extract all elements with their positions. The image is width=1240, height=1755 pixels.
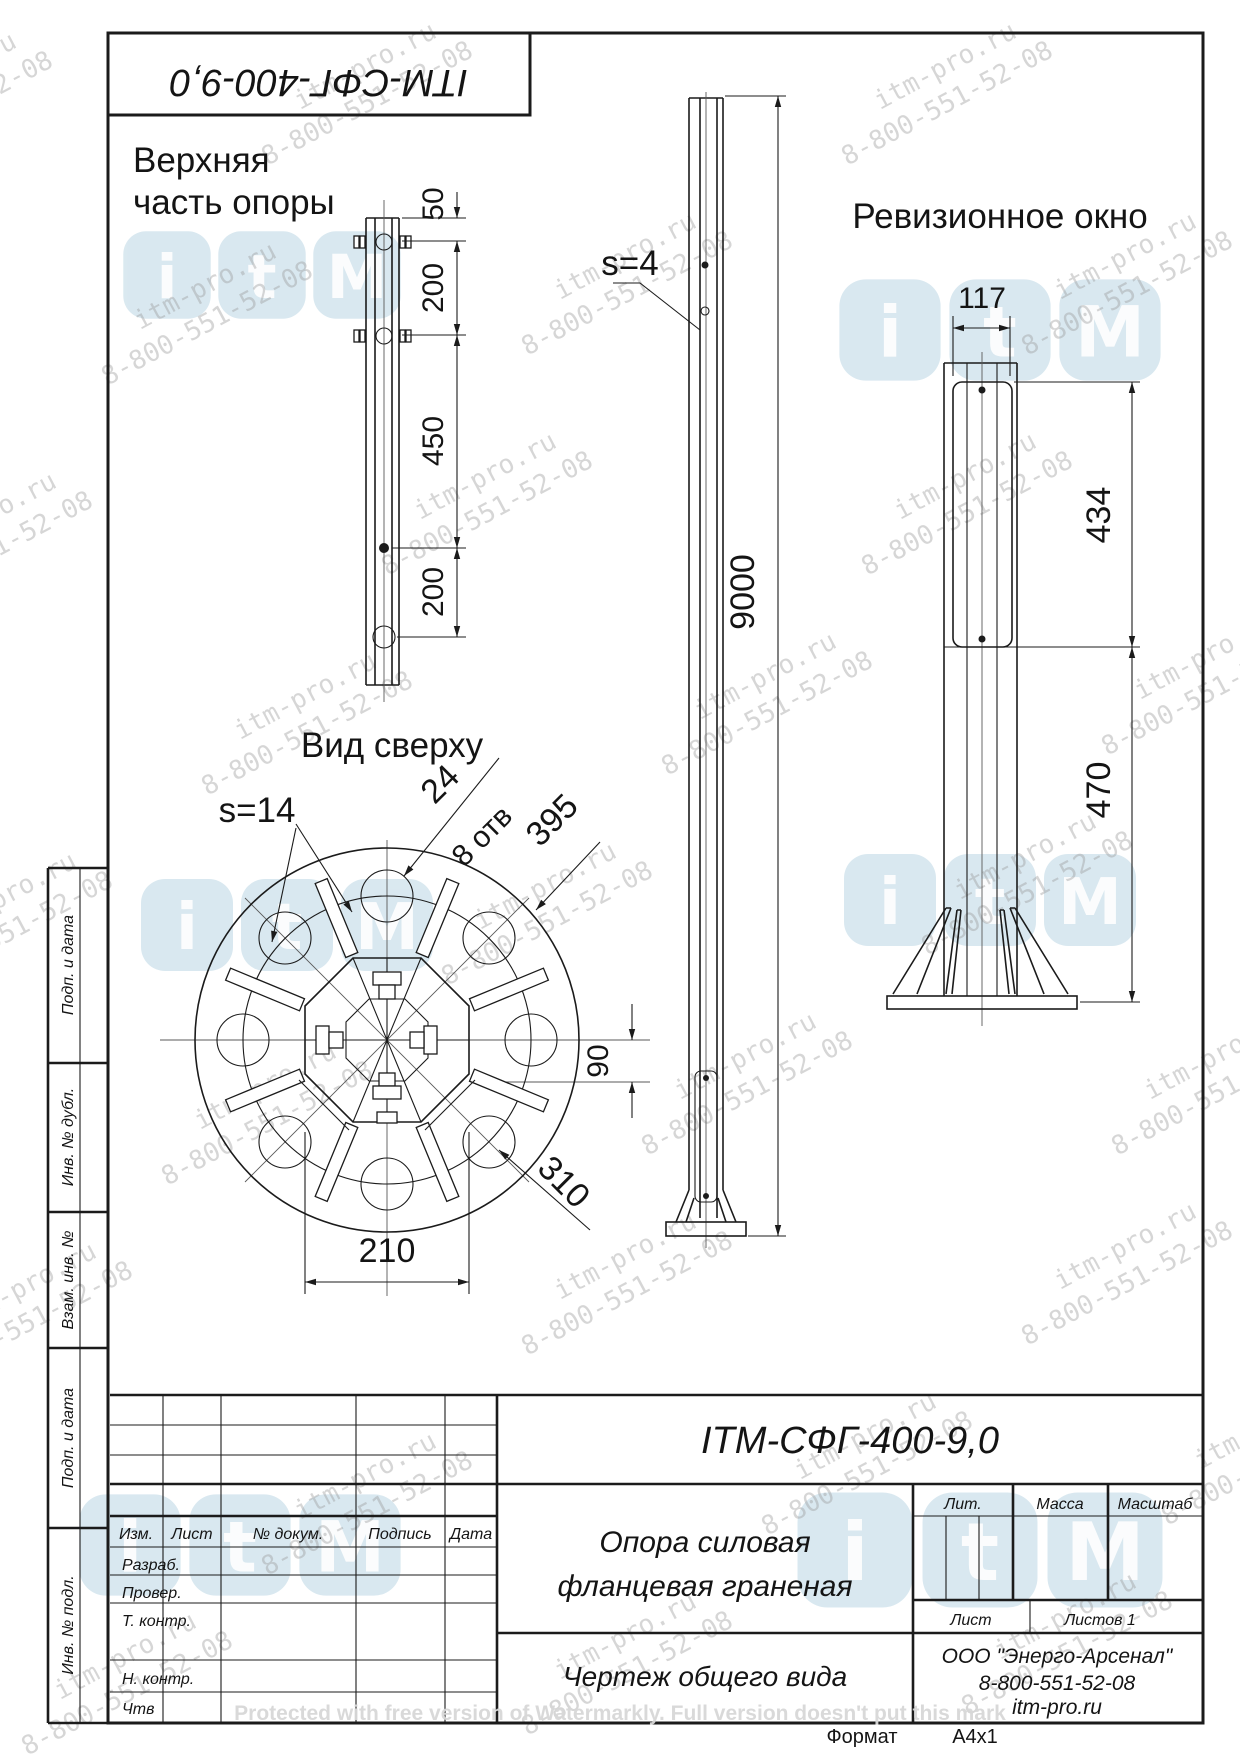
dim-450: 450 [417, 416, 450, 466]
rw-screw-top [979, 387, 986, 394]
top-view-title: Вид сверху [301, 726, 484, 765]
col-list: Лист [170, 1526, 212, 1543]
col-date: Дата [448, 1526, 492, 1543]
format-label: Формат [826, 1726, 897, 1748]
logo-letter: t [961, 1506, 999, 1599]
side-cell-2: Инв. № дубл. [60, 1088, 77, 1186]
dim-434: 434 [1080, 487, 1118, 544]
dim-90: 90 [582, 1044, 615, 1077]
dim-50: 50 [417, 187, 450, 220]
row-tcontrol: Т. контр. [122, 1613, 191, 1630]
side-cell-4: Подп. и дата [60, 1388, 77, 1488]
upper-part-label-1: Верхняя [133, 141, 270, 180]
upper-dot [379, 543, 389, 553]
row-ncontrol: Н. контр. [122, 1671, 194, 1688]
drawing-canvas: itMitMitMitMitMitMitm-pro.ru8-800-551-52… [0, 0, 1240, 1755]
window-screw-top [703, 1075, 709, 1081]
rw-screw-bottom [979, 636, 986, 643]
designation-mirrored-text: ITM-СФГ-400-9,0 [170, 61, 468, 103]
window-screw-bottom [703, 1193, 709, 1199]
dim-210: 210 [359, 1232, 416, 1270]
logo-letter: i [878, 291, 902, 373]
dim-470: 470 [1080, 762, 1118, 819]
product-name-2: фланцевая граненая [558, 1570, 853, 1603]
company-name: ООО "Энерго-Арсенал" [942, 1645, 1174, 1668]
drawing-sheet: itMitMitMitMitMitMitm-pro.ru8-800-551-52… [0, 0, 1240, 1755]
logo-letter: t [272, 891, 303, 965]
format-value: A4x1 [952, 1726, 998, 1748]
col-sign: Подпись [368, 1526, 431, 1543]
side-cell-1: Подп. и дата [60, 915, 77, 1015]
side-cell-5: Инв. № подл. [60, 1575, 77, 1674]
document-type: Чертеж общего вида [563, 1661, 847, 1692]
logo-letter: i [176, 891, 198, 965]
revision-window-title: Ревизионное окно [852, 197, 1147, 236]
row-developed: Разраб. [122, 1557, 180, 1574]
dim-200a: 200 [417, 263, 450, 313]
company-phone: 8-800-551-52-08 [979, 1672, 1136, 1695]
logo-letter: M [327, 243, 388, 313]
dim-200b: 200 [417, 567, 450, 617]
mass-header: Масса [1036, 1496, 1083, 1513]
sheet-label: Лист [949, 1612, 991, 1629]
sheets-label: Листов 1 [1063, 1612, 1136, 1629]
company-site: itm-pro.ru [1012, 1696, 1102, 1719]
side-cell-3: Взам. инв. № [60, 1231, 77, 1330]
lit-header: Лит. [943, 1496, 981, 1513]
wall-thickness-s14: s=14 [219, 791, 296, 830]
col-doc: № докум. [253, 1526, 323, 1543]
wall-thickness-s4: s=4 [601, 244, 658, 283]
scale-header: Масштаб [1118, 1496, 1194, 1513]
watermarkly-protect-text: Protected with free version of Watermark… [234, 1702, 1006, 1725]
upper-part-label-2: часть опоры [133, 183, 335, 222]
dim-9000: 9000 [724, 554, 762, 630]
logo-letter: i [879, 866, 901, 940]
product-name-1: Опора силовая [599, 1526, 810, 1559]
col-izm: Изм. [119, 1526, 153, 1543]
title-designation: ITM-СФГ-400-9,0 [701, 1420, 999, 1462]
row-approved: Чтв [122, 1701, 154, 1718]
dim-117: 117 [958, 282, 1006, 315]
row-checked: Провер. [122, 1585, 182, 1602]
pole-dot [702, 262, 709, 269]
